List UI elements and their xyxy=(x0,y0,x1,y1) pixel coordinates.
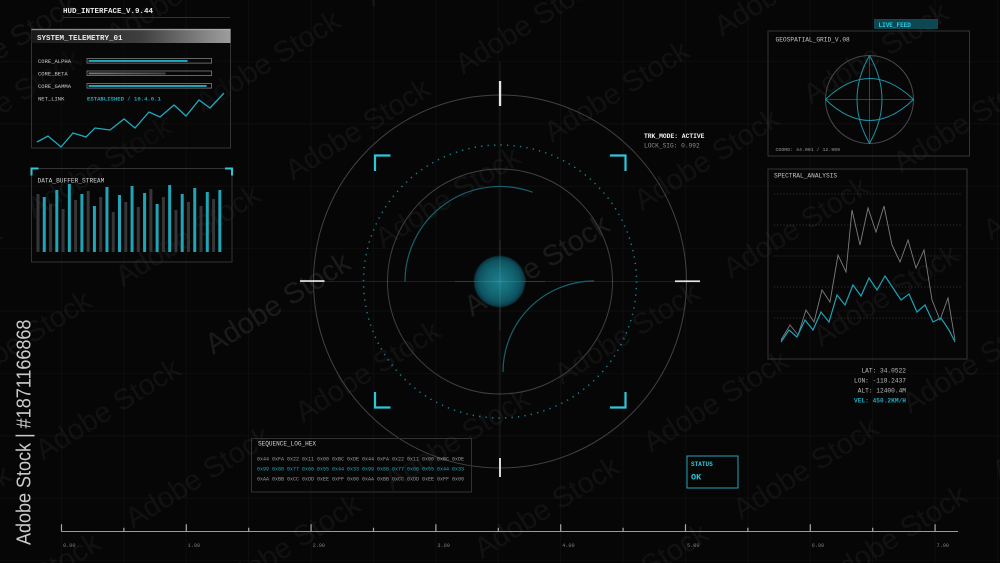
svg-text:0x99 0x88 0x77 0x66 0x55 0x44: 0x99 0x88 0x77 0x66 0x55 0x44 0x33 0x99 … xyxy=(257,467,464,473)
svg-text:1.00: 1.00 xyxy=(188,543,200,549)
svg-text:LOCK_SIG: 0.992: LOCK_SIG: 0.992 xyxy=(644,143,700,150)
svg-text:DATA_BUFFER_STREAM: DATA_BUFFER_STREAM xyxy=(38,178,105,185)
svg-text:LIVE_FEED: LIVE_FEED xyxy=(879,22,912,29)
svg-text:4.00: 4.00 xyxy=(562,543,574,549)
svg-text:STATUS: STATUS xyxy=(691,461,713,468)
svg-text:5.00: 5.00 xyxy=(687,543,699,549)
svg-text:HUD_INTERFACE_V.9.44: HUD_INTERFACE_V.9.44 xyxy=(63,8,154,16)
svg-text:TRK_MODE: ACTIVE: TRK_MODE: ACTIVE xyxy=(644,133,705,140)
svg-text:0x44 0xFA 0x22 0x11 0x00 0xBC: 0x44 0xFA 0x22 0x11 0x00 0xBC 0xDE 0x44 … xyxy=(257,457,464,463)
svg-text:7.00: 7.00 xyxy=(937,543,949,549)
svg-text:Adobe Stock | #1871166868: Adobe Stock | #1871166868 xyxy=(14,320,36,545)
svg-text:LAT: 34.0522: LAT: 34.0522 xyxy=(861,368,906,375)
svg-text:SPECTRAL_ANALYSIS: SPECTRAL_ANALYSIS xyxy=(774,173,837,180)
svg-text:3.00: 3.00 xyxy=(437,543,449,549)
svg-text:SYSTEM_TELEMETRY_01: SYSTEM_TELEMETRY_01 xyxy=(37,35,123,43)
svg-text:ESTABLISHED / 10.4.0.1: ESTABLISHED / 10.4.0.1 xyxy=(87,96,161,103)
svg-text:SEQUENCE_LOG_HEX: SEQUENCE_LOG_HEX xyxy=(258,441,316,448)
svg-text:CORE_BETA: CORE_BETA xyxy=(38,71,68,78)
svg-text:6.00: 6.00 xyxy=(812,543,824,549)
svg-text:0.00: 0.00 xyxy=(63,543,75,549)
svg-text:CORE_ALPHA: CORE_ALPHA xyxy=(38,58,72,65)
svg-text:VEL: 450.2KM/H: VEL: 450.2KM/H xyxy=(854,398,906,405)
svg-text:LON: -118.2437: LON: -118.2437 xyxy=(854,378,906,385)
svg-text:COORD: 44.001 / 12.909: COORD: 44.001 / 12.909 xyxy=(776,147,841,153)
svg-text:ALT: 12400.4M: ALT: 12400.4M xyxy=(858,388,907,395)
svg-text:0xAA 0xBB 0xCC 0xDD 0xEE 0xFF: 0xAA 0xBB 0xCC 0xDD 0xEE 0xFF 0x00 0xAA … xyxy=(257,476,464,482)
svg-text:NET_LINK: NET_LINK xyxy=(38,96,65,103)
svg-text:CORE_GAMMA: CORE_GAMMA xyxy=(38,83,72,90)
svg-text:OK: OK xyxy=(691,473,702,483)
svg-text:GEOSPATIAL_GRID_V.08: GEOSPATIAL_GRID_V.08 xyxy=(776,37,851,44)
svg-text:2.00: 2.00 xyxy=(313,543,325,549)
